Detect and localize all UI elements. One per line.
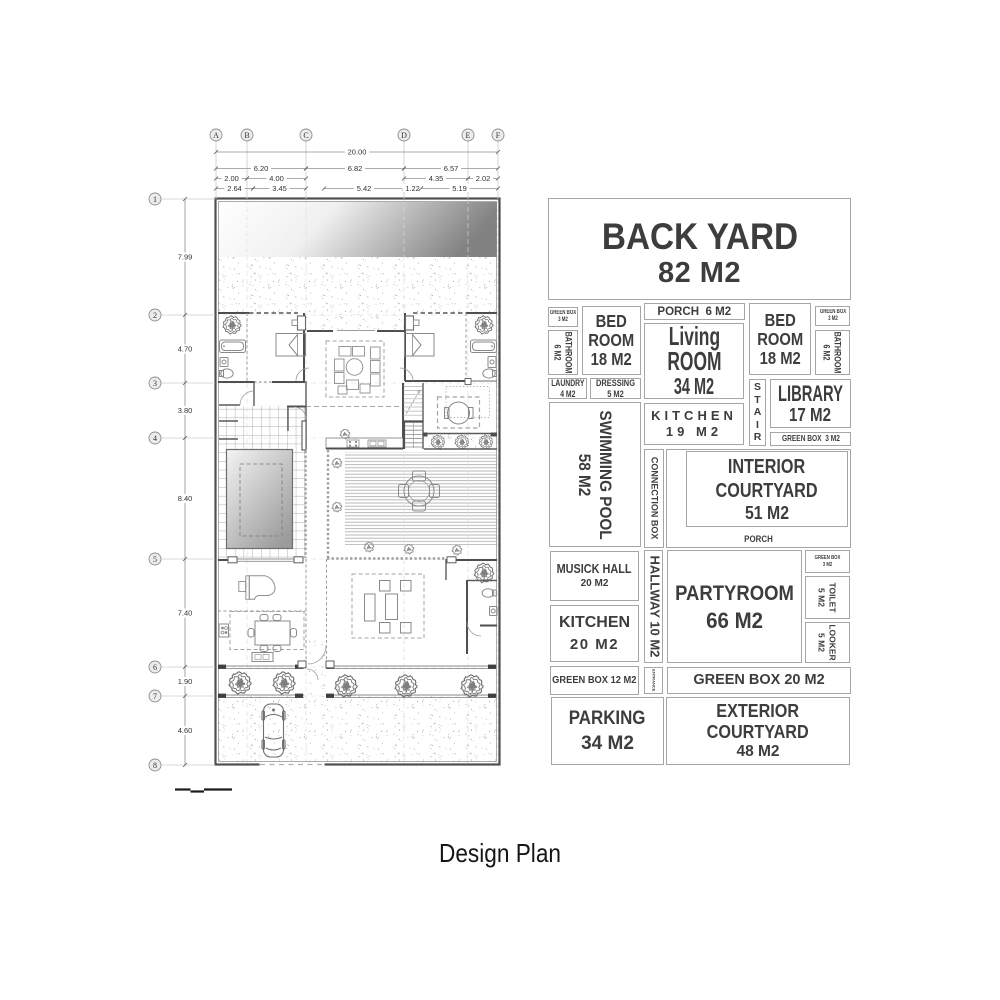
svg-text:E: E [466, 131, 471, 140]
svg-text:4.60: 4.60 [178, 726, 193, 735]
svg-text:1: 1 [153, 195, 157, 204]
svg-text:5.42: 5.42 [357, 184, 372, 193]
svg-text:A: A [213, 131, 219, 140]
svg-text:5: 5 [153, 555, 157, 564]
svg-text:8.40: 8.40 [178, 494, 193, 503]
svg-text:8: 8 [153, 761, 157, 770]
svg-text:4.00: 4.00 [269, 174, 284, 183]
svg-text:1.90: 1.90 [178, 677, 193, 686]
svg-text:6: 6 [153, 663, 157, 672]
svg-text:F: F [496, 131, 501, 140]
svg-text:4.35: 4.35 [429, 174, 444, 183]
svg-text:6.20: 6.20 [254, 164, 269, 173]
svg-text:2.64: 2.64 [227, 184, 242, 193]
svg-text:20.00: 20.00 [348, 148, 367, 157]
svg-text:4.70: 4.70 [178, 345, 193, 354]
svg-text:2: 2 [153, 311, 157, 320]
svg-text:1.22: 1.22 [405, 184, 420, 193]
svg-text:3.80: 3.80 [178, 406, 193, 415]
svg-text:5.19: 5.19 [452, 184, 467, 193]
svg-text:7.99: 7.99 [178, 253, 193, 262]
svg-text:2.02: 2.02 [476, 174, 491, 183]
svg-text:B: B [244, 131, 249, 140]
svg-text:2.00: 2.00 [224, 174, 239, 183]
svg-text:C: C [303, 131, 308, 140]
svg-text:D: D [401, 131, 407, 140]
svg-text:6.82: 6.82 [348, 164, 363, 173]
svg-text:6.57: 6.57 [444, 164, 459, 173]
svg-text:7.40: 7.40 [178, 609, 193, 618]
svg-text:3: 3 [153, 379, 157, 388]
svg-text:4: 4 [153, 434, 157, 443]
svg-text:7: 7 [153, 692, 157, 701]
svg-text:3.45: 3.45 [272, 184, 287, 193]
